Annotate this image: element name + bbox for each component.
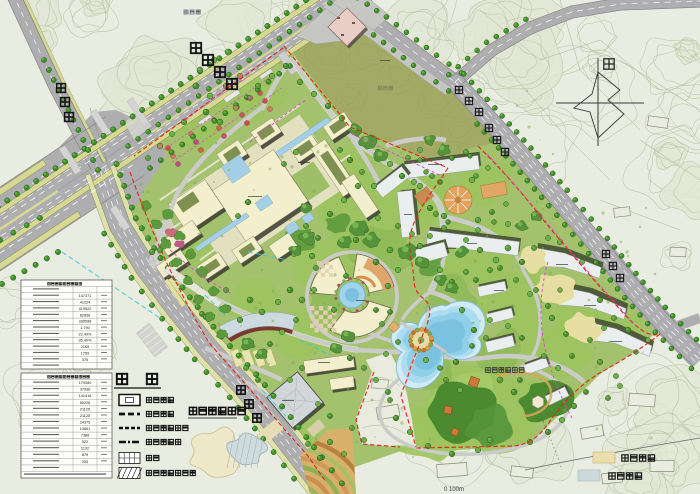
svg-text:24375: 24375 <box>80 420 91 424</box>
svg-text:41224: 41224 <box>80 301 91 305</box>
svg-text:375: 375 <box>82 358 88 362</box>
svg-text:522: 522 <box>82 440 88 444</box>
svg-text:147371: 147371 <box>79 294 92 298</box>
svg-text:65226: 65226 <box>80 401 91 405</box>
svg-text:141418: 141418 <box>79 394 92 398</box>
svg-text:1.790: 1.790 <box>80 326 90 330</box>
svg-text:179080: 179080 <box>79 381 92 385</box>
svg-text:22.40%: 22.40% <box>79 332 93 336</box>
svg-text:419522: 419522 <box>79 307 92 311</box>
svg-text:336598: 336598 <box>79 320 92 324</box>
svg-text:2169: 2169 <box>81 345 89 349</box>
svg-text:13661: 13661 <box>80 427 91 431</box>
svg-text:1759: 1759 <box>81 351 89 355</box>
svg-text:82936: 82936 <box>80 313 91 317</box>
svg-text:7388: 7388 <box>81 434 89 438</box>
svg-text:37936: 37936 <box>80 388 91 392</box>
svg-text:21125: 21125 <box>80 407 90 411</box>
svg-text:35.40%: 35.40% <box>79 339 93 343</box>
svg-text:1132: 1132 <box>81 447 89 451</box>
svg-text:21125: 21125 <box>80 414 90 418</box>
svg-text:0 100m: 0 100m <box>444 487 464 493</box>
svg-text:253: 253 <box>82 460 88 464</box>
svg-text:879: 879 <box>82 453 88 457</box>
